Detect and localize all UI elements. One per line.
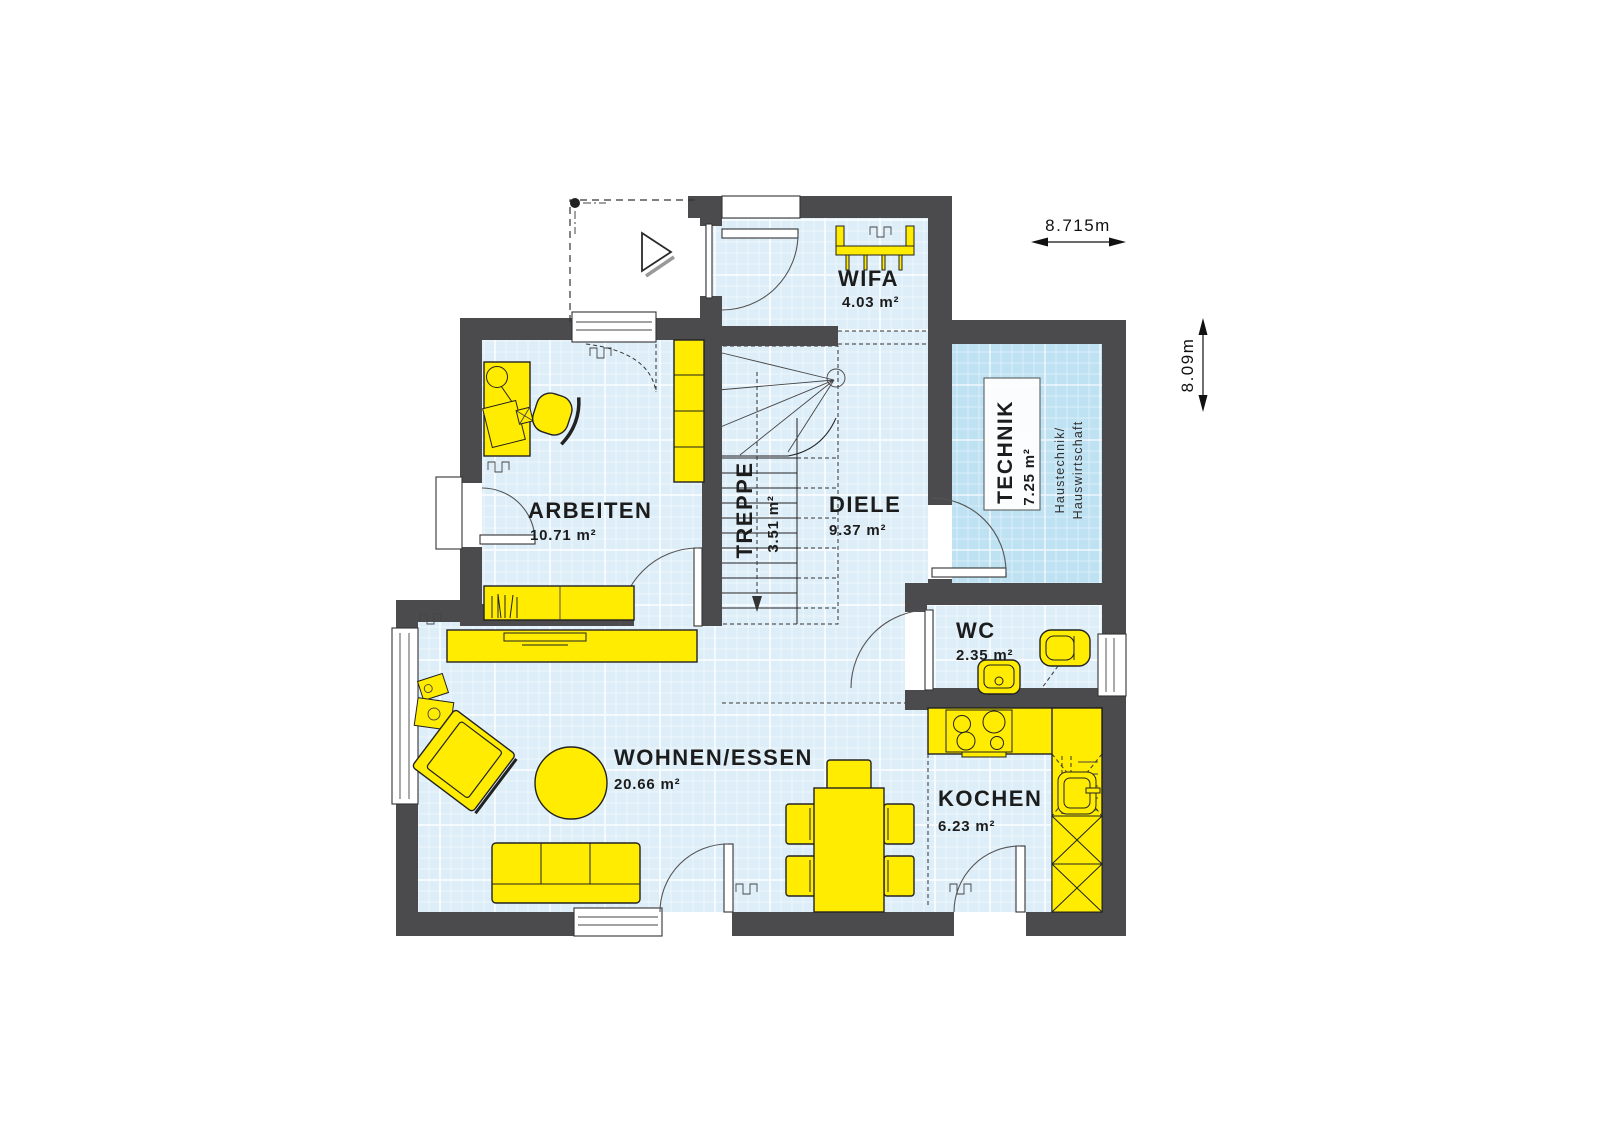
window-arbeiten-top (572, 312, 656, 342)
dining-chair (786, 856, 816, 896)
room-area-treppe: 3.51 m² (765, 495, 782, 552)
window-wc-right (1098, 634, 1126, 696)
sofa (492, 843, 640, 903)
arrow-down-icon (1199, 395, 1208, 412)
dining-table (814, 788, 884, 912)
technik-note-2: Hauswirtschaft (1071, 421, 1085, 520)
stove (946, 710, 1012, 757)
room-area-wc: 2.35 m² (956, 647, 1013, 664)
room-area-wohnen-essen: 20.66 m² (614, 776, 680, 793)
room-area-kochen: 6.23 m² (938, 818, 995, 835)
kitchen-sink (1058, 772, 1100, 814)
room-label-technik: TECHNIK (994, 400, 1017, 504)
room-label-wohnen-essen: WOHNEN/ESSEN (614, 745, 813, 770)
floor-plan-drawing: WIFA 4.03 m² ARBEITEN 10.71 m² TREPPE 3.… (0, 0, 1600, 1132)
floor-plan-page: WIFA 4.03 m² ARBEITEN 10.71 m² TREPPE 3.… (0, 0, 1600, 1132)
entry-sidelight (706, 224, 712, 298)
room-label-wifa: WIFA (838, 266, 899, 291)
room-label-kochen: KOCHEN (938, 786, 1042, 811)
dining-chair (786, 804, 816, 844)
room-area-arbeiten: 10.71 m² (530, 527, 596, 544)
dimension-height: 8.09m (1178, 318, 1208, 412)
porch (570, 198, 698, 322)
desk (483, 362, 537, 456)
arrow-left-icon (1031, 238, 1048, 247)
room-area-technik: 7.25 m² (1021, 448, 1038, 505)
kitchen-counter-right (1052, 708, 1102, 912)
dimension-width: 8.715m (1031, 216, 1126, 247)
room-area-wifa: 4.03 m² (842, 294, 899, 311)
room-label-treppe: TREPPE (732, 461, 757, 558)
room-area-diele: 9.37 m² (829, 522, 886, 539)
entrance-arrow-icon (642, 233, 671, 271)
arrow-up-icon (1199, 318, 1208, 335)
technik-note-1: Haustechnik/ (1053, 427, 1067, 514)
sideboard-books (484, 586, 634, 620)
dimension-width-label: 8.715m (1045, 216, 1111, 235)
tv-sideboard (447, 630, 697, 662)
dimension-height-label: 8.09m (1178, 338, 1197, 393)
entry-door-frame (722, 196, 800, 218)
shelf (674, 340, 704, 482)
coffee-table (535, 747, 607, 819)
porch-post (570, 198, 580, 208)
wc-sink (978, 660, 1020, 694)
room-label-wc: WC (956, 618, 996, 643)
window-wohnen-bottom (574, 908, 662, 936)
room-label-arbeiten: ARBEITEN (528, 498, 652, 523)
arbeiten-door-recess (436, 477, 462, 549)
dining-chair (827, 760, 871, 790)
room-label-diele: DIELE (829, 492, 901, 517)
arrow-right-icon (1109, 238, 1126, 247)
window-wohnen-left (392, 628, 418, 804)
